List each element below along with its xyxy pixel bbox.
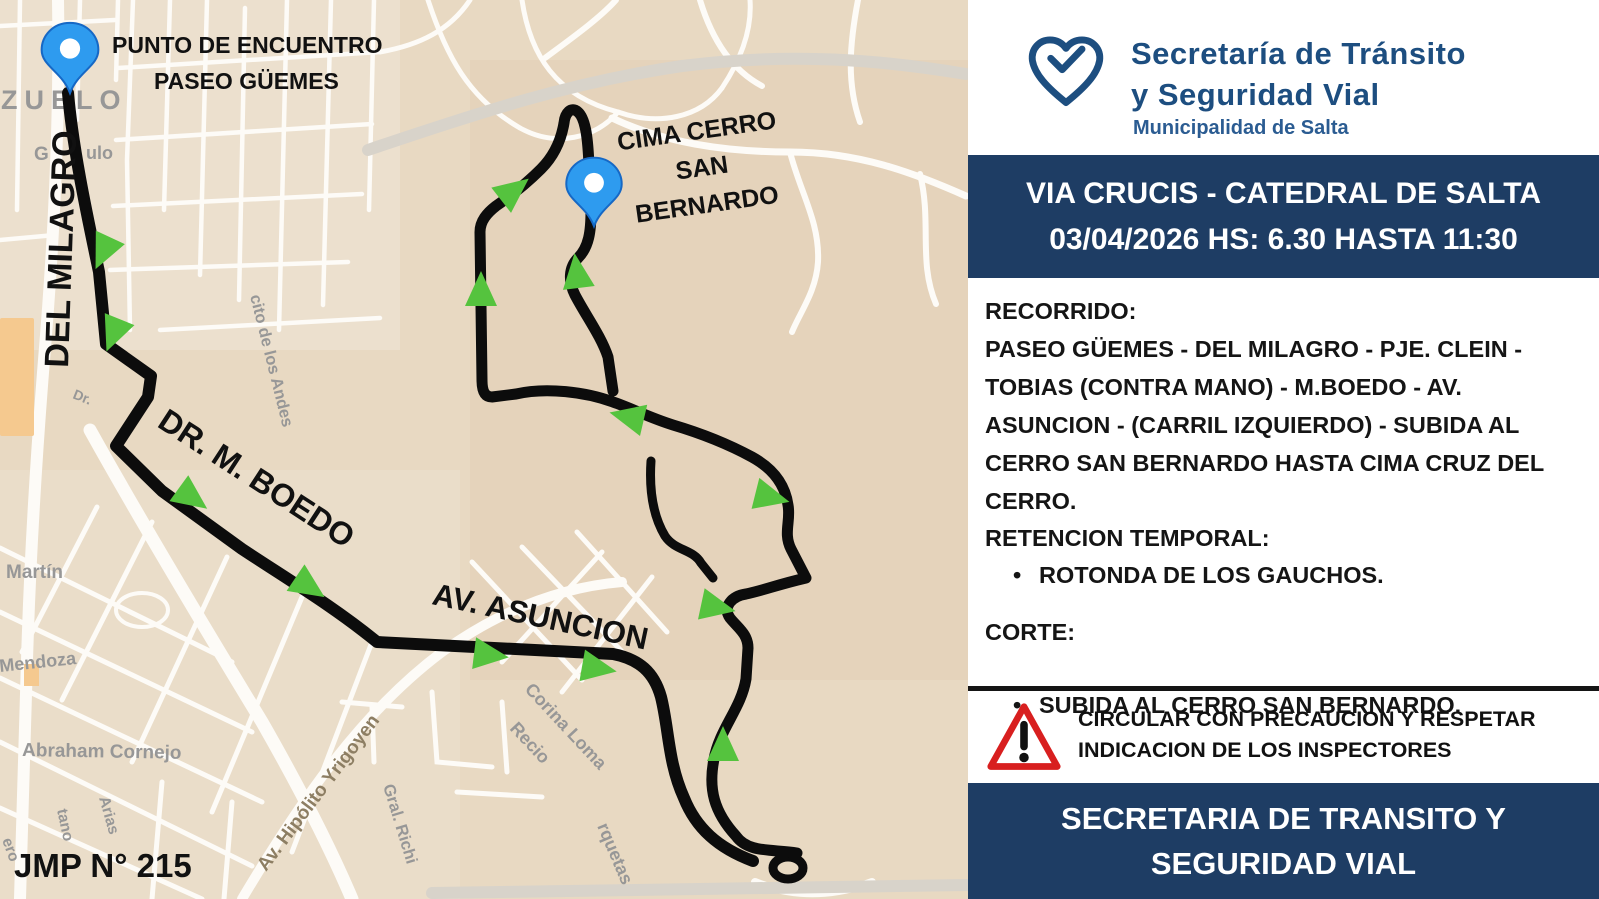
footer-line1: SECRETARIA DE TRANSITO Y — [1061, 796, 1506, 841]
retencion-heading: RETENCION TEMPORAL: — [985, 519, 1270, 557]
street-label-cornejo: Abraham Cornejo — [22, 740, 182, 764]
warning-triangle-icon — [986, 699, 1062, 777]
recorrido-line: ASUNCION - (CARRIL IZQUIERDO) - SUBIDA A… — [985, 406, 1544, 444]
heart-logo-icon — [1024, 30, 1108, 114]
retencion-item: ROTONDA DE LOS GAUCHOS. — [1013, 556, 1599, 594]
street-label-martin: Martín — [6, 562, 63, 583]
logo-subtitle: Municipalidad de Salta — [1133, 117, 1349, 140]
route-map: ZUELO G ulo Dr. cito de los Andes Martín… — [0, 0, 968, 899]
event-banner: VIA CRUCIS - CATEDRAL DE SALTA 03/04/202… — [968, 155, 1599, 278]
event-banner-title: VIA CRUCIS - CATEDRAL DE SALTA — [1026, 171, 1541, 217]
recorrido-line: CERRO. — [985, 482, 1544, 520]
meeting-point-label-line1: PUNTO DE ENCUENTRO — [112, 32, 383, 58]
logo-title-line1: Secretaría de Tránsito — [1131, 36, 1466, 72]
recorrido-line: CERRO SAN BERNARDO HASTA CIMA CRUZ DEL — [985, 444, 1544, 482]
recorrido-line: PASEO GÜEMES - DEL MILAGRO - PJE. CLEIN … — [985, 330, 1544, 368]
street-label-frag-ulo: ulo — [86, 143, 113, 163]
recorrido-line: TOBIAS (CONTRA MANO) - M.BOEDO - AV. — [985, 368, 1544, 406]
jmp-ref-label: JMP N° 215 — [14, 847, 192, 884]
info-panel: Secretaría de Tránsito y Seguridad Vial … — [968, 0, 1599, 899]
via-crucis-flyer: ZUELO G ulo Dr. cito de los Andes Martín… — [0, 0, 1599, 899]
recorrido-heading: RECORRIDO: — [985, 292, 1544, 330]
recorrido-block: RECORRIDO: PASEO GÜEMES - DEL MILAGRO - … — [985, 292, 1544, 520]
footer-line2: SEGURIDAD VIAL — [1151, 841, 1416, 886]
warning-line1: CIRCULAR CON PRECAUCION Y RESPETAR — [1078, 704, 1536, 735]
warning-text: CIRCULAR CON PRECAUCION Y RESPETAR INDIC… — [1078, 704, 1536, 766]
footer-banner: SECRETARIA DE TRANSITO Y SEGURIDAD VIAL — [968, 783, 1599, 899]
logo-title-line2: y Seguridad Vial — [1131, 77, 1380, 113]
event-banner-datetime: 03/04/2026 HS: 6.30 HASTA 11:30 — [1049, 217, 1518, 263]
map-canvas: ZUELO G ulo Dr. cito de los Andes Martín… — [0, 0, 968, 899]
warning-line2: INDICACION DE LOS INSPECTORES — [1078, 735, 1536, 766]
section-divider — [968, 686, 1599, 691]
meeting-point-label-line2: PASEO GÜEMES — [154, 68, 339, 94]
corte-heading: CORTE: — [985, 613, 1075, 651]
